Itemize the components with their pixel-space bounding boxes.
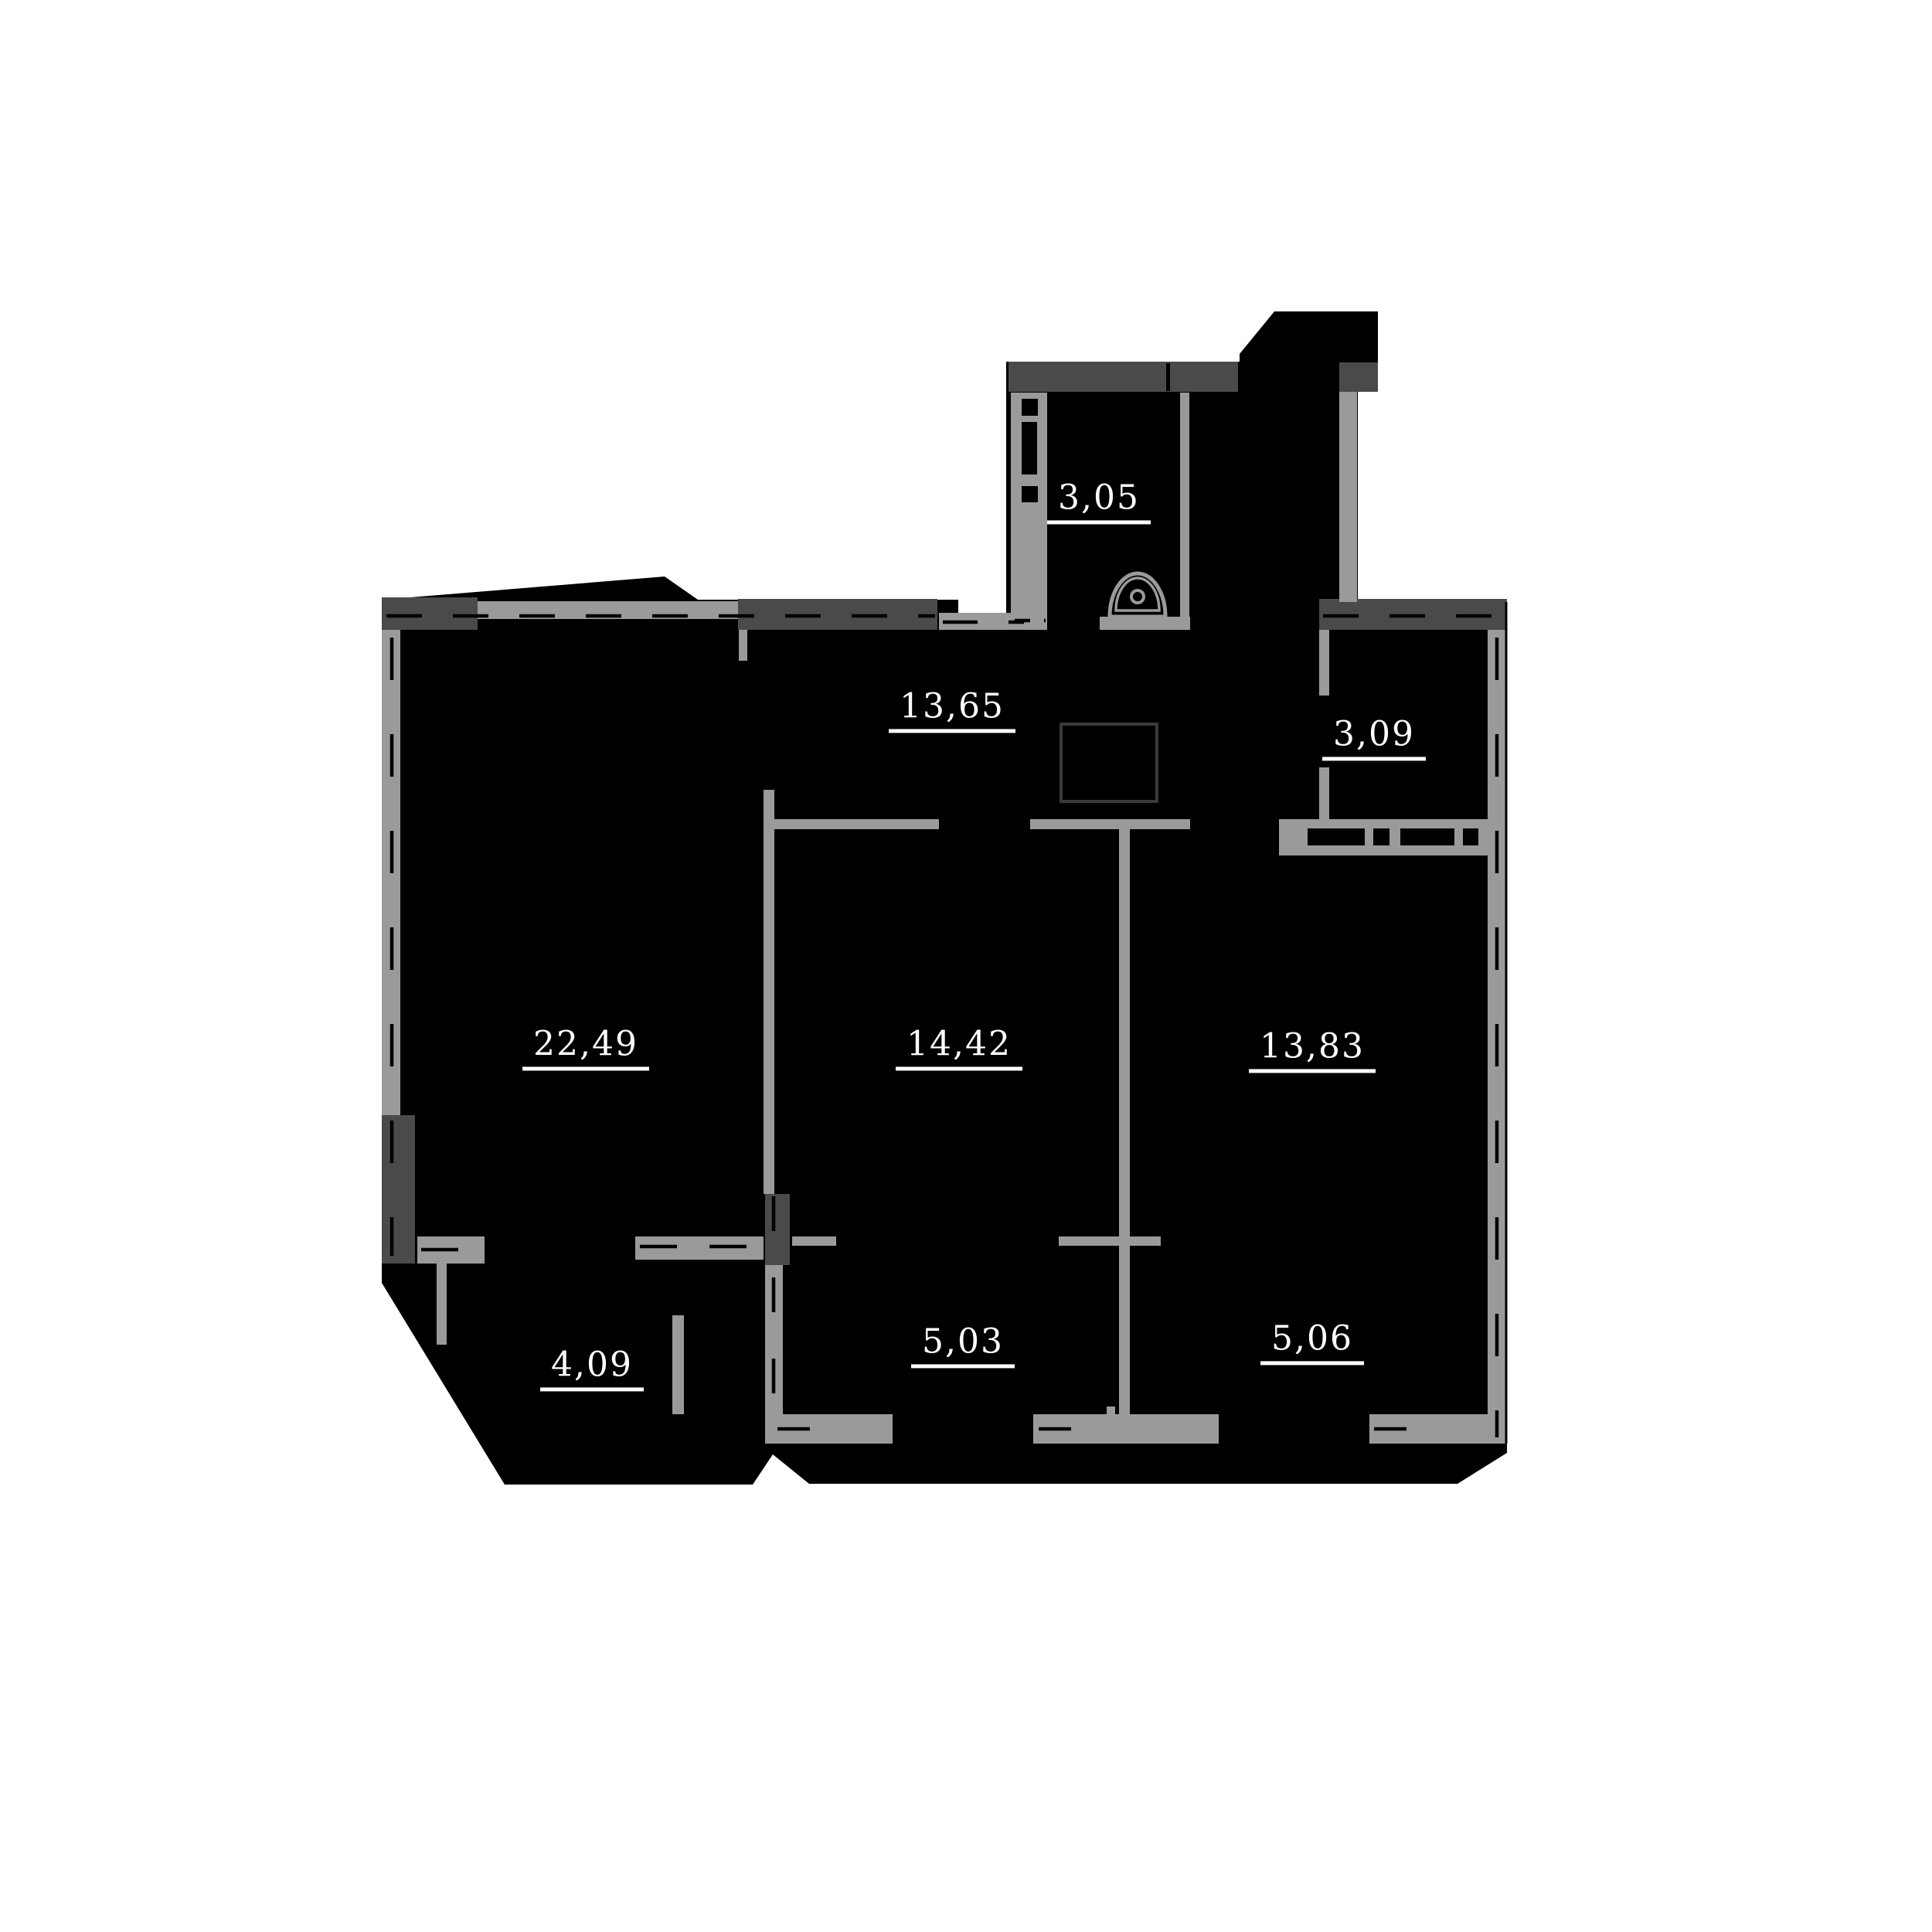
duct-outline — [1061, 724, 1157, 801]
band-tick — [1166, 363, 1170, 391]
bathroom-bottom-wall — [1100, 617, 1190, 630]
roof-slant — [382, 577, 698, 600]
floor-plan: 3,05 13,65 3,09 22,49 14,42 13,83 4,09 5… — [0, 0, 1932, 1932]
room-area-label: 4,09 — [540, 1347, 644, 1391]
floor-plan-drawing — [0, 0, 1932, 1932]
room-area-label: 5,06 — [1260, 1321, 1364, 1365]
shaft-openings — [1022, 399, 1038, 502]
left-partition — [764, 790, 774, 1194]
room-area-label: 5,03 — [911, 1324, 1015, 1368]
center-partition — [1119, 829, 1130, 1414]
room-area-label: 22,49 — [522, 1026, 649, 1070]
room-area-label: 13,83 — [1249, 1029, 1376, 1073]
room-area-label: 14,42 — [896, 1026, 1022, 1070]
room-area-label: 3,09 — [1322, 716, 1426, 760]
building-silhouette — [382, 311, 1507, 1485]
bathroom-right-wall — [1180, 393, 1189, 617]
room-area-label: 3,05 — [1047, 480, 1151, 524]
room-area-label: 13,65 — [889, 689, 1015, 733]
tower-right-wall — [1339, 392, 1357, 602]
